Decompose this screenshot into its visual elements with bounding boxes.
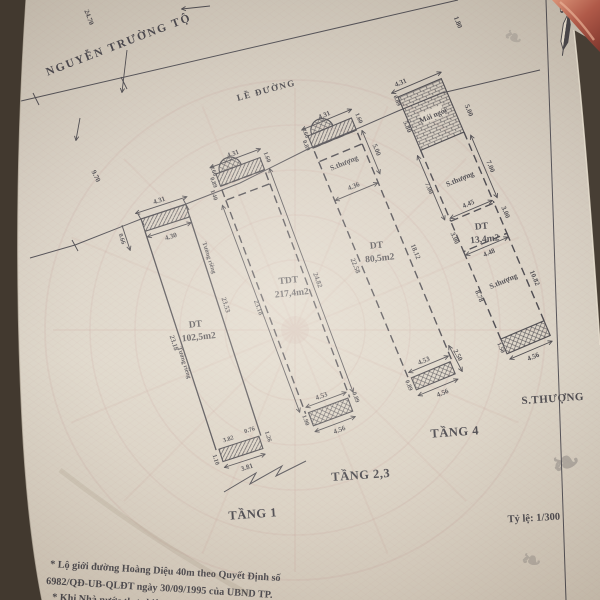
photo-lighting-vignette: [0, 0, 600, 600]
site-plan-drawing: ❧ ❧ ❧ NGUYỄN TRƯỜNG TỘ LỀ ĐƯỜNG 24.70 9.…: [0, 0, 600, 600]
photo-of-survey-document: ❧ ❧ ❧ NGUYỄN TRƯỜNG TỘ LỀ ĐƯỜNG 24.70 9.…: [0, 0, 600, 600]
